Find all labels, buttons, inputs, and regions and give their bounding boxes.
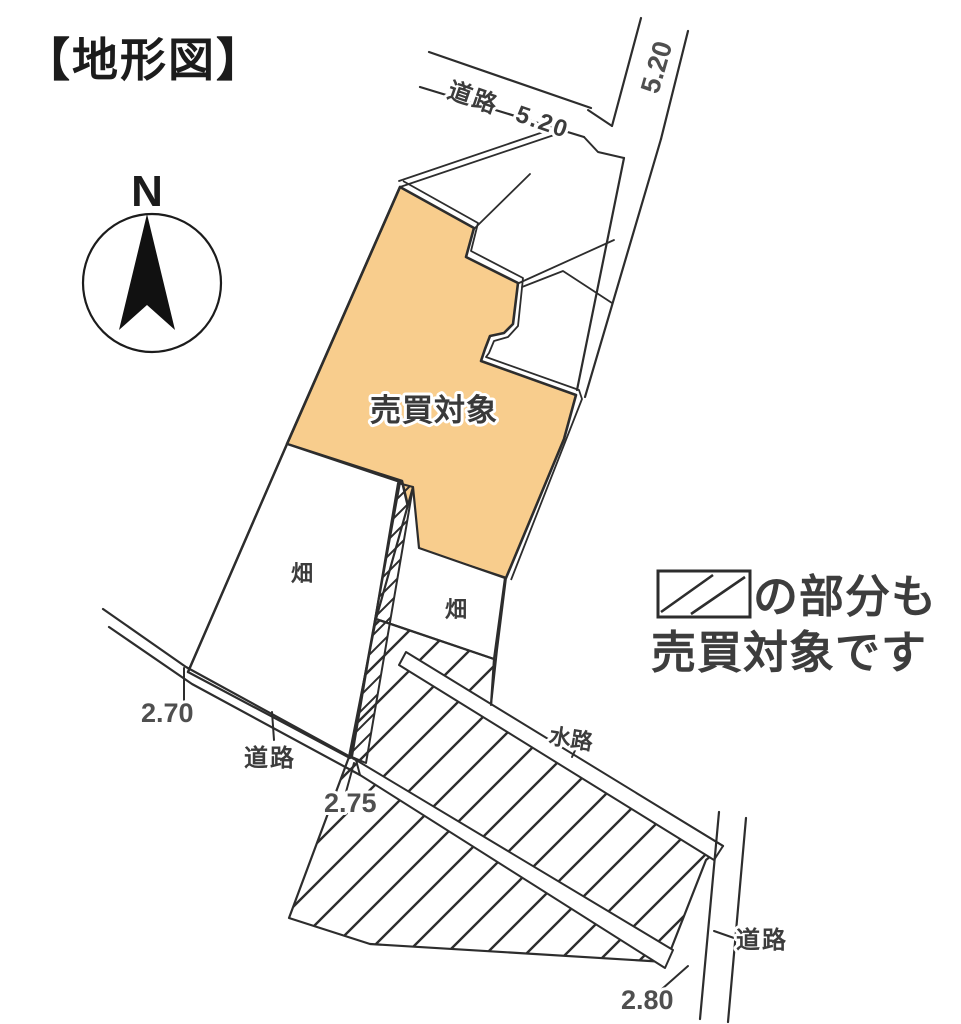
division-line-a <box>475 174 530 228</box>
width-2-70-label: 2.70 <box>141 698 194 728</box>
junction-lines <box>584 110 624 158</box>
road-right-width-label: 5.20 <box>635 38 678 97</box>
north-label: N <box>131 167 163 216</box>
east-road-lines <box>577 139 661 397</box>
terrain-map-canvas: N 【地形図】 売買対象 畑 畑 道路5.20 5.20 2.70 道路 2.7… <box>0 0 961 1024</box>
sale-parcel-label: 売買対象 <box>370 393 498 428</box>
road-bottom-right-label: 道路 <box>736 926 788 954</box>
page-title: 【地形図】 <box>24 34 264 86</box>
legend: の部分も 売買対象です <box>651 571 937 678</box>
road-top-name: 道路 <box>444 76 502 119</box>
legend-text-line1: の部分も <box>753 571 937 622</box>
parcel-shapes <box>188 181 723 968</box>
terrain-map-page: N 【地形図】 売買対象 畑 畑 道路5.20 5.20 2.70 道路 2.7… <box>0 0 961 1024</box>
road-left-label: 道路 <box>244 744 296 772</box>
compass: N <box>83 167 221 352</box>
field-left-label: 畑 <box>291 561 313 586</box>
width-2-75-label: 2.75 <box>324 788 377 818</box>
field-right-label: 畑 <box>445 597 467 622</box>
road-top-label: 道路5.20 <box>444 76 573 144</box>
compass-needle <box>119 214 175 330</box>
leader-road-bottom-right <box>714 931 734 938</box>
legend-text-line2: 売買対象です <box>651 627 927 678</box>
legend-swatch <box>658 571 750 617</box>
road-top-width-label: 5.20 <box>512 101 573 144</box>
width-2-80-label: 2.80 <box>621 985 674 1015</box>
